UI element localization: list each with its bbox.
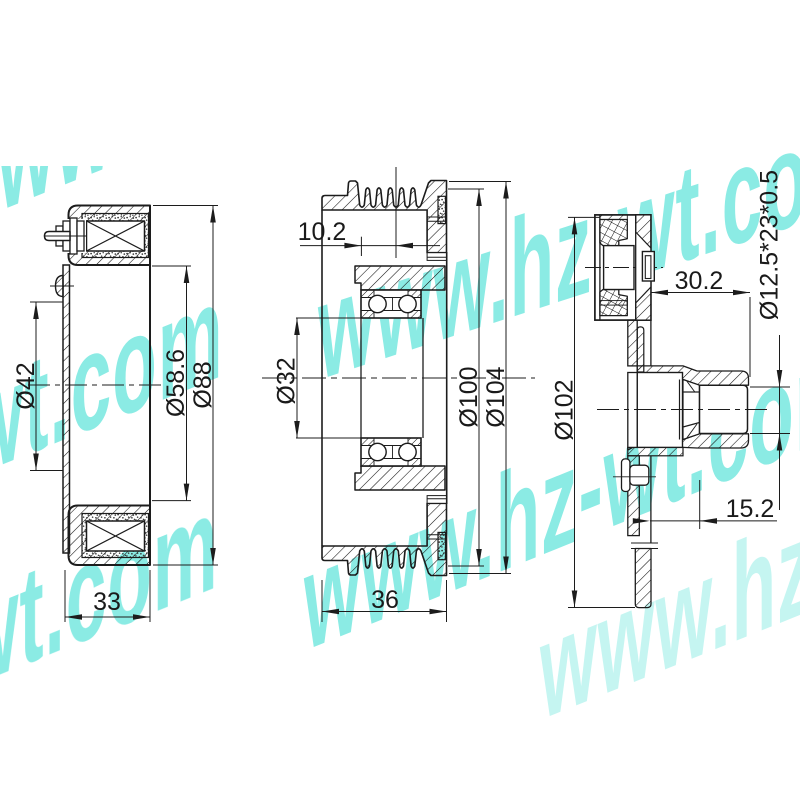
svg-text:36: 36: [371, 586, 399, 614]
svg-text:10.2: 10.2: [298, 218, 347, 246]
svg-text:15.2: 15.2: [726, 495, 775, 523]
svg-text:Ø88: Ø88: [189, 361, 217, 408]
svg-text:Ø12.5*23*0.5: Ø12.5*23*0.5: [756, 170, 784, 320]
svg-text:Ø32: Ø32: [273, 357, 301, 404]
svg-text:Ø100: Ø100: [455, 366, 483, 427]
svg-text:Ø58.6: Ø58.6: [162, 349, 190, 417]
svg-text:30.2: 30.2: [675, 267, 724, 295]
svg-text:Ø102: Ø102: [551, 379, 579, 440]
svg-text:Ø42: Ø42: [12, 362, 40, 409]
svg-text:Ø104: Ø104: [482, 366, 510, 427]
svg-text:33: 33: [93, 588, 121, 616]
